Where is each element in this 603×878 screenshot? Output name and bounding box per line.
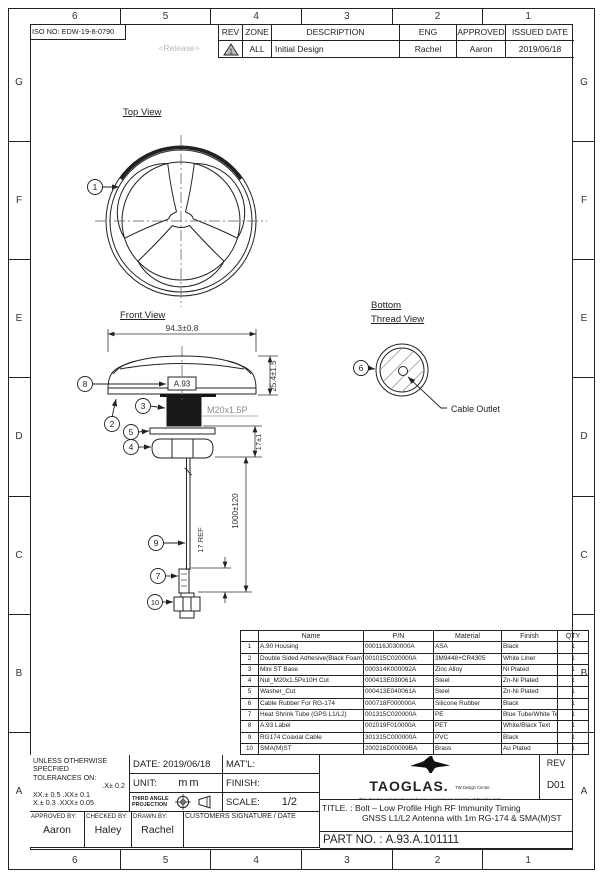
- zone-row-label: D: [573, 378, 595, 496]
- zone-row-label: F: [573, 142, 595, 260]
- bom-cell: 1: [558, 732, 589, 743]
- bom-cell: 10: [241, 743, 259, 754]
- zone-row-label: F: [8, 142, 30, 260]
- part-number-cell: PART NO. : A.93.A.101111: [320, 832, 573, 849]
- bom-header-row: Name P/N Material Finish QTY: [241, 631, 589, 642]
- bom-cell: Mini ST Base: [259, 664, 364, 675]
- revision-description: Initial Design: [272, 41, 400, 58]
- bom-cell: 5: [241, 687, 259, 698]
- bom-cell: SMA(M)ST: [259, 743, 364, 754]
- revision-issued-date: 2019/06/18: [506, 41, 574, 58]
- zone-row-label: E: [8, 260, 30, 378]
- zone-col-header: ZONE: [243, 24, 272, 41]
- zone-strip-top: 654321: [30, 8, 573, 24]
- bom-row: 10SMA(M)ST200216D00009BABrassAu Plated1: [241, 743, 589, 754]
- issued-date-col-header: ISSUED DATE: [506, 24, 574, 41]
- iso-number: ISO NO: EDW-19-8-0790: [32, 27, 114, 36]
- title-line1: : Bolt – Low Profile High RF Immunity Ti…: [350, 803, 521, 813]
- scale-label: SCALE:: [226, 797, 260, 808]
- zone-column-label: 5: [121, 8, 212, 24]
- bom-cell: 1: [558, 698, 589, 709]
- bom-row: 2Double Sided Adhesive(Black Foam)001015…: [241, 653, 589, 664]
- bom-cell: 1: [241, 642, 259, 653]
- zone-column-label: 5: [121, 850, 212, 870]
- bom-cell: A.93 Label: [259, 721, 364, 732]
- bom-header-index: [241, 631, 259, 642]
- bom-cell: Nut_M20x1.5Px10H Cut: [259, 676, 364, 687]
- revision-zone: ALL: [243, 41, 272, 58]
- bom-row: 4Nut_M20x1.5Px10H Cut000413E030061ASteel…: [241, 676, 589, 687]
- zone-row-label: E: [573, 260, 595, 378]
- bom-cell: 7: [241, 710, 259, 721]
- bom-cell: 9: [241, 732, 259, 743]
- date-cell: DATE: 2019/06/18: [130, 755, 223, 774]
- zone-row-label: B: [8, 615, 30, 733]
- bom-cell: 000413E030061A: [364, 676, 434, 687]
- bom-row: 6Cable Rubber For RG-174000718F000000ASi…: [241, 698, 589, 709]
- bom-cell: 4: [241, 676, 259, 687]
- bom-cell: Double Sided Adhesive(Black Foam): [259, 653, 364, 664]
- zone-column-label: 6: [30, 850, 121, 870]
- bom-cell: Ni Plated: [502, 664, 558, 675]
- projection-label-line2: PROJECTION: [132, 802, 169, 808]
- zone-strip-bottom: 654321: [30, 850, 573, 870]
- release-status: <Release>: [136, 43, 222, 53]
- approved-col-header: APPROVED: [457, 24, 506, 41]
- eng-col-header: ENG: [400, 24, 457, 41]
- zone-column-label: 4: [211, 850, 302, 870]
- material-label: MAT'L:: [226, 759, 255, 770]
- bom-cell: 000314K000092A: [364, 664, 434, 675]
- rev-value: D01: [540, 780, 572, 791]
- bom-row: 8A.93 Label001019F010000APETWhite/Black …: [241, 721, 589, 732]
- brand-subtitle: TW Design Centre: [455, 785, 489, 790]
- bom-row: 1A.90 Housing000116J030000AASABlack1: [241, 642, 589, 653]
- bom-cell: Silicone Rubber: [434, 698, 502, 709]
- bom-cell: 001015C020000A: [364, 653, 434, 664]
- rev-label: REV: [540, 758, 572, 768]
- bottom-view-title-line2: Thread View: [371, 314, 424, 325]
- finish-label: FINISH:: [226, 778, 260, 789]
- bom-cell: 1: [558, 687, 589, 698]
- zone-row-label: G: [573, 24, 595, 142]
- bom-cell: Cable Rubber For RG-174: [259, 698, 364, 709]
- title-label: TITLE.: [322, 803, 348, 813]
- bom-cell: Brass: [434, 743, 502, 754]
- bom-cell: A.90 Housing: [259, 642, 364, 653]
- zone-column-label: 2: [393, 8, 484, 24]
- material-cell: MAT'L:: [223, 755, 320, 774]
- top-view-title: Top View: [123, 107, 161, 118]
- projection-cell: THIRD ANGLE PROJECTION: [130, 793, 223, 812]
- brand-name: TAOGLAS.: [369, 778, 448, 794]
- zone-column-label: 3: [302, 850, 393, 870]
- front-view-title: Front View: [120, 310, 165, 321]
- zone-row-label: C: [573, 497, 595, 615]
- third-angle-projection-icon: [169, 793, 221, 811]
- zone-column-label: 1: [483, 850, 573, 870]
- zone-row-label: G: [8, 24, 30, 142]
- bom-cell: Black: [502, 642, 558, 653]
- bom-cell: PET: [434, 721, 502, 732]
- zone-column-label: 3: [302, 8, 393, 24]
- bom-cell: 000413E040061A: [364, 687, 434, 698]
- bom-header-pn: P/N: [364, 631, 434, 642]
- part-number-label: PART NO. :: [323, 834, 382, 846]
- bom-cell: ASA: [434, 642, 502, 653]
- engineering-drawing-page: 1: [0, 0, 603, 878]
- unit-cell: UNIT: mm: [130, 774, 223, 793]
- svg-text:1: 1: [229, 48, 233, 55]
- bom-cell: 1: [558, 743, 589, 754]
- drawn-by-cell: DRAWN BY: Rachel: [132, 812, 184, 848]
- zone-column-label: 1: [483, 8, 573, 24]
- bom-cell: 2: [241, 653, 259, 664]
- bom-table-body: 1A.90 Housing000116J030000AASABlack12Dou…: [241, 642, 589, 755]
- bom-cell: 000116J030000A: [364, 642, 434, 653]
- checked-by-cell: CHECKED BY: Haley: [85, 812, 132, 848]
- customer-signature-label: CUSTOMERS SIGNATURE / DATE: [184, 812, 319, 820]
- checked-by-label: CHECKED BY:: [85, 812, 131, 820]
- drawing-title-cell: TITLE. : Bolt – Low Profile High RF Immu…: [320, 800, 573, 832]
- drawn-by-value: Rachel: [132, 824, 183, 836]
- approved-by-label: APPROVED BY:: [30, 812, 84, 820]
- bom-cell: Zinc Alloy: [434, 664, 502, 675]
- revision-triangle-icon: 1: [223, 43, 239, 56]
- bom-cell: 6: [241, 698, 259, 709]
- iso-number-box: ISO NO: EDW-19-8-0790: [30, 24, 126, 40]
- customer-signature-cell: CUSTOMERS SIGNATURE / DATE: [184, 812, 320, 848]
- bom-cell: 1: [558, 721, 589, 732]
- bom-cell: 1: [558, 642, 589, 653]
- scale-cell: SCALE: 1/2: [223, 793, 320, 812]
- bom-cell: 1: [558, 710, 589, 721]
- unit-value: mm: [157, 777, 222, 789]
- bom-cell: 001019F010000A: [364, 721, 434, 732]
- bom-cell: Washer_Cut: [259, 687, 364, 698]
- bom-header-material: Material: [434, 631, 502, 642]
- part-number-value: A.93.A.101111: [386, 834, 460, 846]
- bom-cell: Steel: [434, 676, 502, 687]
- bom-row: 5Washer_Cut000413E040061ASteelZn-Ni Plat…: [241, 687, 589, 698]
- bom-cell: Black: [502, 732, 558, 743]
- unit-label: UNIT:: [133, 778, 157, 789]
- zone-column-label: 6: [30, 8, 121, 24]
- checked-by-value: Haley: [85, 824, 131, 836]
- bill-of-materials-table: Name P/N Material Finish QTY 1A.90 Housi…: [240, 630, 589, 755]
- zone-strip-left: GFEDCBA: [8, 24, 30, 850]
- tolerance-block: UNLESS OTHERWISE SPECFIED TOLERANCES ON:…: [30, 755, 130, 812]
- bom-cell: Black: [502, 698, 558, 709]
- bom-header-finish: Finish: [502, 631, 558, 642]
- scale-value: 1/2: [260, 796, 319, 808]
- bom-header-qty: QTY: [558, 631, 589, 642]
- bom-cell: Steel: [434, 687, 502, 698]
- approved-by-value: Aaron: [30, 824, 84, 836]
- title-line2: GNSS L1/L2 Antenna with 1m RG-174 & SMA(…: [322, 813, 572, 823]
- bom-cell: Zn-Ni Plated: [502, 676, 558, 687]
- logo-cell: TAOGLAS. TW Design Centre This drawing a…: [320, 755, 540, 800]
- approved-by-cell: APPROVED BY: Aaron: [30, 812, 85, 848]
- bom-row: 3Mini ST Base000314K000092AZinc AlloyNi …: [241, 664, 589, 675]
- bom-row: 7Heat Shrink Tube (GPS L1/L2)001315C0200…: [241, 710, 589, 721]
- description-col-header: DESCRIPTION: [272, 24, 400, 41]
- bom-cell: Heat Shrink Tube (GPS L1/L2): [259, 710, 364, 721]
- bom-cell: 000718F000000A: [364, 698, 434, 709]
- bom-cell: 1: [558, 664, 589, 675]
- bom-cell: 8: [241, 721, 259, 732]
- bom-cell: 1: [558, 676, 589, 687]
- revision-eng: Rachel: [400, 41, 457, 58]
- rev-col-header: REV: [219, 24, 243, 41]
- bom-cell: White/Black Text: [502, 721, 558, 732]
- revision-table: REV ZONE DESCRIPTION ENG APPROVED ISSUED…: [218, 24, 573, 58]
- bom-row: 9RG174 Coaxial Cable301315C000000APVCBla…: [241, 732, 589, 743]
- tolerance-line: X.± 0.3 .XXX± 0.05: [33, 799, 127, 807]
- revision-approved: Aaron: [457, 41, 506, 58]
- date-value: 2019/06/18: [163, 759, 211, 770]
- zone-column-label: 2: [393, 850, 484, 870]
- bom-cell: White Liner: [502, 653, 558, 664]
- zone-row-label: C: [8, 497, 30, 615]
- zone-row-label: A: [8, 733, 30, 850]
- bom-cell: 3: [241, 664, 259, 675]
- bom-cell: 200216D00009BA: [364, 743, 434, 754]
- bom-cell: 001315C020000A: [364, 710, 434, 721]
- bom-cell: PE: [434, 710, 502, 721]
- bom-cell: 301315C000000A: [364, 732, 434, 743]
- bom-cell: 1: [558, 653, 589, 664]
- finish-cell: FINISH:: [223, 774, 320, 793]
- zone-column-label: 4: [211, 8, 302, 24]
- date-label: DATE:: [133, 759, 160, 770]
- bottom-view-title-line1: Bottom: [371, 300, 401, 311]
- bom-cell: Zn-Ni Plated: [502, 687, 558, 698]
- zone-row-label: D: [8, 378, 30, 496]
- bom-cell: Blue Tube/White Text: [502, 710, 558, 721]
- bom-header-name: Name: [259, 631, 364, 642]
- revision-mark-cell: 1: [219, 41, 243, 58]
- bom-cell: RG174 Coaxial Cable: [259, 732, 364, 743]
- bom-cell: Au Plated: [502, 743, 558, 754]
- bom-cell: 3M9448+CR4305: [434, 653, 502, 664]
- bom-cell: PVC: [434, 732, 502, 743]
- drawn-by-label: DRAWN BY:: [132, 812, 183, 820]
- taoglas-star-icon: [410, 756, 450, 773]
- rev-cell: REV D01: [540, 755, 573, 800]
